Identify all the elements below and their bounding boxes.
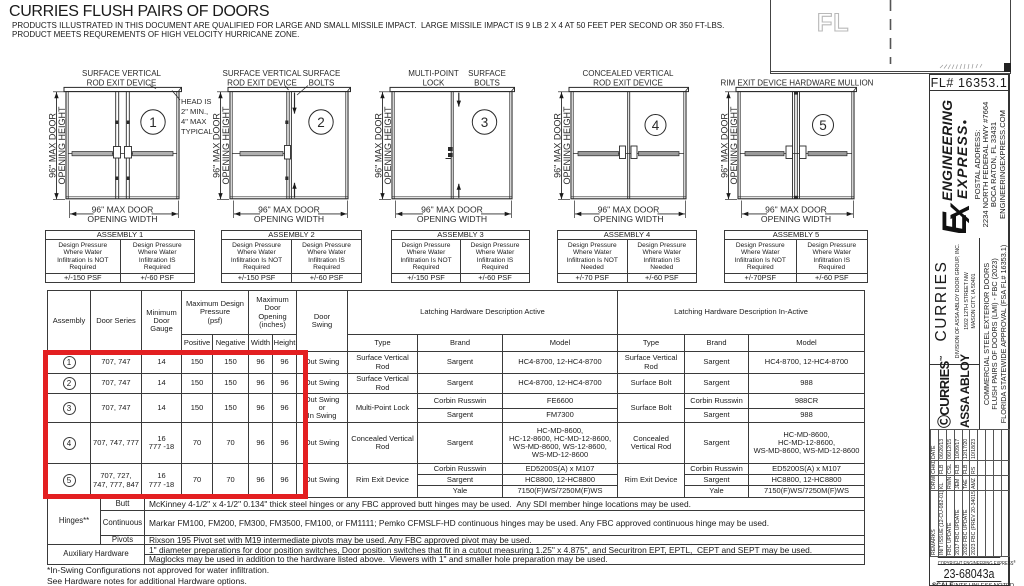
svg-text:ROD EXIT DEVICE: ROD EXIT DEVICE	[87, 79, 157, 88]
svg-text:3: 3	[481, 115, 489, 130]
svg-text:OPENING WIDTH: OPENING WIDTH	[254, 214, 324, 224]
svg-text:SURFACE: SURFACE	[303, 69, 341, 78]
svg-text:SURFACE: SURFACE	[468, 69, 506, 78]
svg-text:4: 4	[652, 118, 660, 133]
svg-text:2: 2	[317, 115, 325, 130]
svg-text:OPENING WIDTH: OPENING WIDTH	[87, 214, 157, 224]
svg-text:ROD EXIT DEVICE: ROD EXIT DEVICE	[593, 79, 663, 88]
svg-text:OPENING WIDTH: OPENING WIDTH	[417, 214, 487, 224]
svg-text:CONCEALED VERTICAL: CONCEALED VERTICAL	[583, 69, 675, 78]
svg-text:BOLTS: BOLTS	[474, 79, 500, 88]
svg-text:HEAD IS2" MIN.,4" MAXTYPICAL: HEAD IS2" MIN.,4" MAXTYPICAL	[181, 97, 213, 136]
svg-text:OPENING WIDTH: OPENING WIDTH	[761, 214, 831, 224]
svg-text:FL: FL	[817, 9, 850, 37]
svg-text:MULTI-POINT: MULTI-POINT	[408, 69, 459, 78]
svg-text:SURFACE VERTICAL: SURFACE VERTICAL	[223, 69, 303, 78]
svg-text:SURFACE VERTICAL: SURFACE VERTICAL	[82, 69, 162, 78]
svg-text:96" MAX DOOROPENING HEIGHT: 96" MAX DOOROPENING HEIGHT	[720, 106, 739, 185]
svg-text:96" MAX DOOROPENING HEIGHT: 96" MAX DOOROPENING HEIGHT	[48, 106, 67, 185]
svg-text:96" MAX DOOROPENING HEIGHT: 96" MAX DOOROPENING HEIGHT	[553, 106, 572, 185]
svg-text:5: 5	[819, 118, 827, 133]
svg-text:OPENING WIDTH: OPENING WIDTH	[593, 214, 663, 224]
svg-text:96" MAX DOOROPENING HEIGHT: 96" MAX DOOROPENING HEIGHT	[212, 106, 231, 185]
svg-text:1: 1	[149, 115, 157, 130]
svg-text:RIM EXIT DEVICE HARDWARE MULLI: RIM EXIT DEVICE HARDWARE MULLION	[721, 79, 874, 88]
svg-text:ROD EXIT DEVICE: ROD EXIT DEVICE	[227, 79, 297, 88]
svg-text:LOCK: LOCK	[423, 79, 445, 88]
svg-text:96" MAX DOOROPENING HEIGHT: 96" MAX DOOROPENING HEIGHT	[374, 106, 393, 185]
svg-text:X: X	[945, 202, 971, 224]
svg-text:BOLTS: BOLTS	[309, 79, 335, 88]
